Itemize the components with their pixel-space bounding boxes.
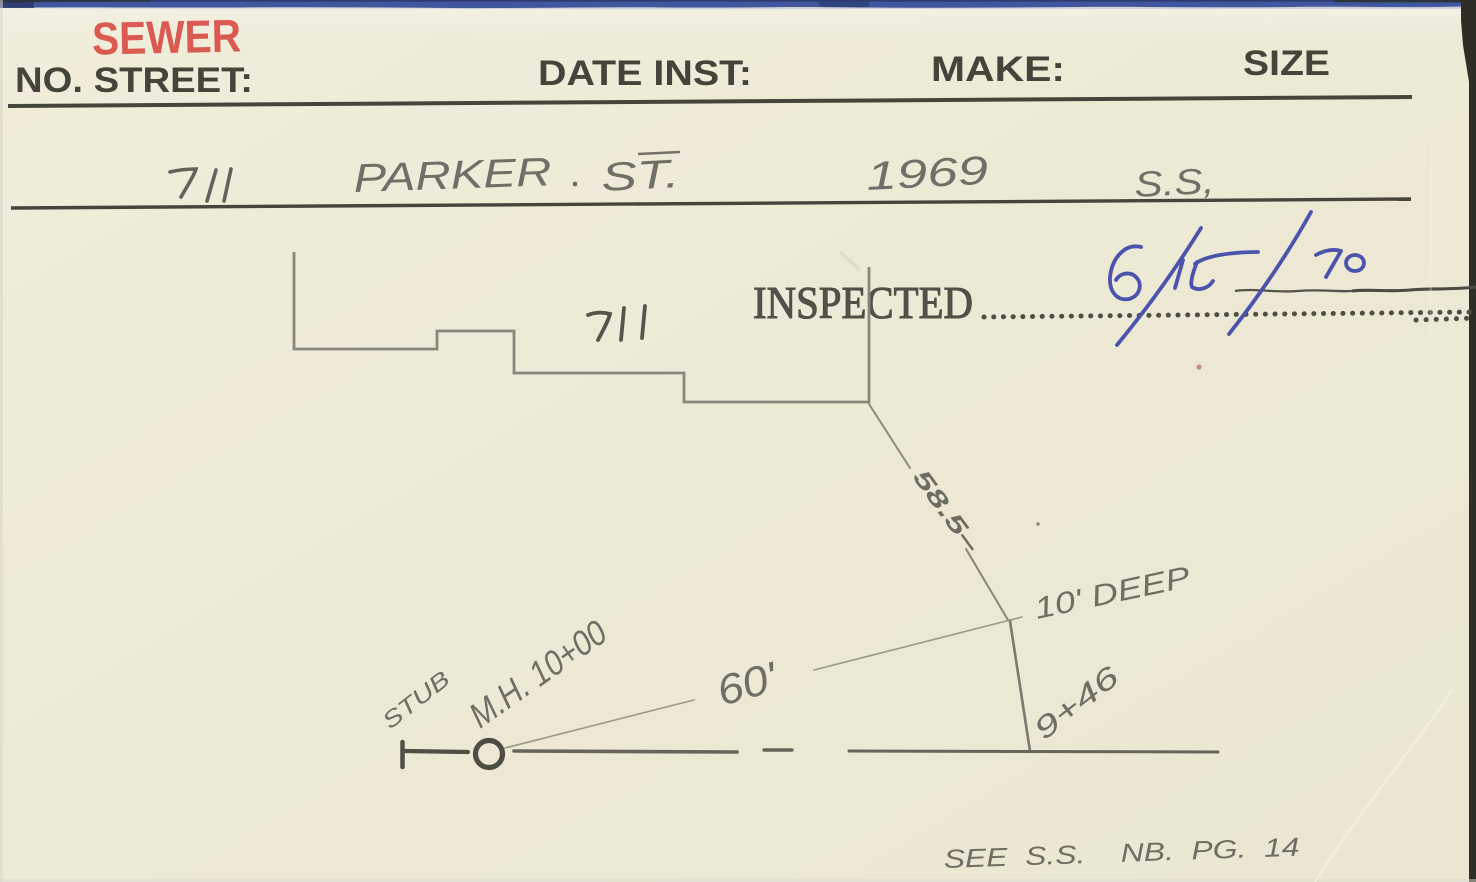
svg-text:1969: 1969 xyxy=(865,149,989,199)
svg-text:INSPECTED: INSPECTED xyxy=(753,277,973,328)
svg-text:S.S,: S.S, xyxy=(1133,160,1215,205)
svg-text:NO. STREET:: NO. STREET: xyxy=(15,61,253,100)
svg-text:PARKER: PARKER xyxy=(353,150,552,201)
svg-text:SIZE: SIZE xyxy=(1243,44,1330,83)
svg-text:SEWER: SEWER xyxy=(92,9,242,64)
svg-text:DATE INST:: DATE INST: xyxy=(538,54,752,93)
svg-text:MAKE:: MAKE: xyxy=(931,50,1065,89)
svg-text:ST.: ST. xyxy=(600,152,680,200)
